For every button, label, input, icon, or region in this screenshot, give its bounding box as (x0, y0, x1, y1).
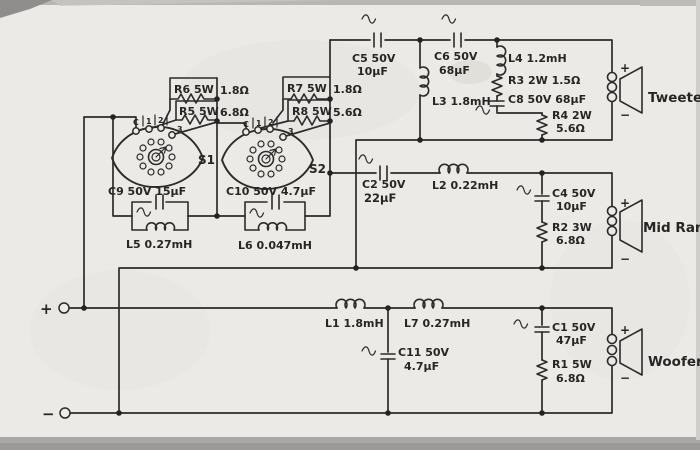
s2-terminal-2: 2 (268, 118, 274, 127)
woofer-plus: + (620, 323, 630, 337)
label-r3: R3 2W 1.5Ω (508, 74, 581, 87)
label-midrange: Mid Range (643, 220, 700, 236)
label-c11-value: 4.7µF (404, 360, 439, 373)
label-l1: L1 1.8mH (325, 317, 384, 330)
s2-terminal-1: 1 (256, 119, 262, 128)
label-c4-value: 10µF (556, 200, 587, 213)
label-l2: L2 0.22mH (432, 179, 498, 192)
midrange-plus: + (620, 196, 630, 210)
crossover-schematic: C5 50V 10µF C6 50V 68µF L4 1.2mH R3 2W 1… (0, 0, 700, 450)
label-l6: L6 0.047mH (238, 239, 312, 252)
tweeter-minus: − (620, 108, 630, 122)
label-woofer: Woofer (648, 354, 700, 370)
label-tweeter: Tweeter (648, 90, 700, 106)
label-l5: L5 0.27mH (126, 238, 192, 251)
label-r7: R7 5W (287, 82, 327, 95)
label-r5: R5 5W (179, 105, 219, 118)
label-c6: C6 50V (434, 50, 478, 63)
label-r6-value: 1.8Ω (220, 84, 249, 97)
label-r8: R8 5W (292, 105, 332, 118)
tweeter-plus: + (620, 61, 630, 75)
label-l4: L4 1.2mH (508, 52, 567, 65)
label-r2: R2 3W (552, 221, 592, 234)
s1-terminal-1: 1 (146, 117, 152, 126)
label-c5-value: 10µF (357, 65, 388, 78)
label-c2-value: 22µF (364, 191, 396, 205)
label-r4-value: 5.6Ω (556, 122, 585, 135)
input-plus-sign: + (40, 300, 53, 318)
paper-background (0, 0, 700, 450)
s2-terminal-c: C (243, 120, 249, 129)
input-negative-terminal (60, 408, 70, 418)
label-c8: C8 50V 68µF (508, 93, 586, 106)
midrange-minus: − (620, 252, 630, 266)
label-c6-value: 68µF (439, 64, 470, 77)
input-positive-terminal (59, 303, 69, 313)
scanned-schematic-page: C5 50V 10µF C6 50V 68µF L4 1.2mH R3 2W 1… (0, 0, 700, 450)
woofer-minus: − (620, 371, 630, 385)
label-c9: C9 50V 15µF (108, 185, 186, 198)
label-c4: C4 50V (552, 187, 596, 200)
input-minus-sign: − (42, 405, 55, 423)
label-r1: R1 5W (552, 358, 592, 371)
label-r1-value: 6.8Ω (556, 372, 585, 385)
label-r4: R4 2W (552, 109, 592, 122)
s2-terminal-3: 3 (288, 127, 294, 136)
s1-terminal-3: 3 (177, 125, 183, 134)
label-c1-value: 47µF (556, 334, 587, 347)
label-l7: L7 0.27mH (404, 317, 470, 330)
s1-terminal-2: 2 (158, 116, 164, 125)
label-c2: C2 50V (362, 178, 406, 191)
label-r6: R6 5W (174, 83, 214, 96)
label-l3: L3 1.8mH (432, 95, 491, 108)
label-r2-value: 6.8Ω (556, 234, 585, 247)
label-c5: C5 50V (352, 52, 396, 65)
label-s2: S2 (309, 162, 326, 176)
label-c10: C10 50V 4.7µF (226, 185, 316, 198)
label-r5-value: 6.8Ω (220, 106, 249, 119)
s1-terminal-c: C (133, 118, 139, 127)
label-r8-value: 5.6Ω (333, 106, 362, 119)
label-c1: C1 50V (552, 321, 596, 334)
label-r7-value: 1.8Ω (333, 83, 362, 96)
label-s1: S1 (198, 153, 215, 167)
label-c11: C11 50V (398, 346, 450, 359)
